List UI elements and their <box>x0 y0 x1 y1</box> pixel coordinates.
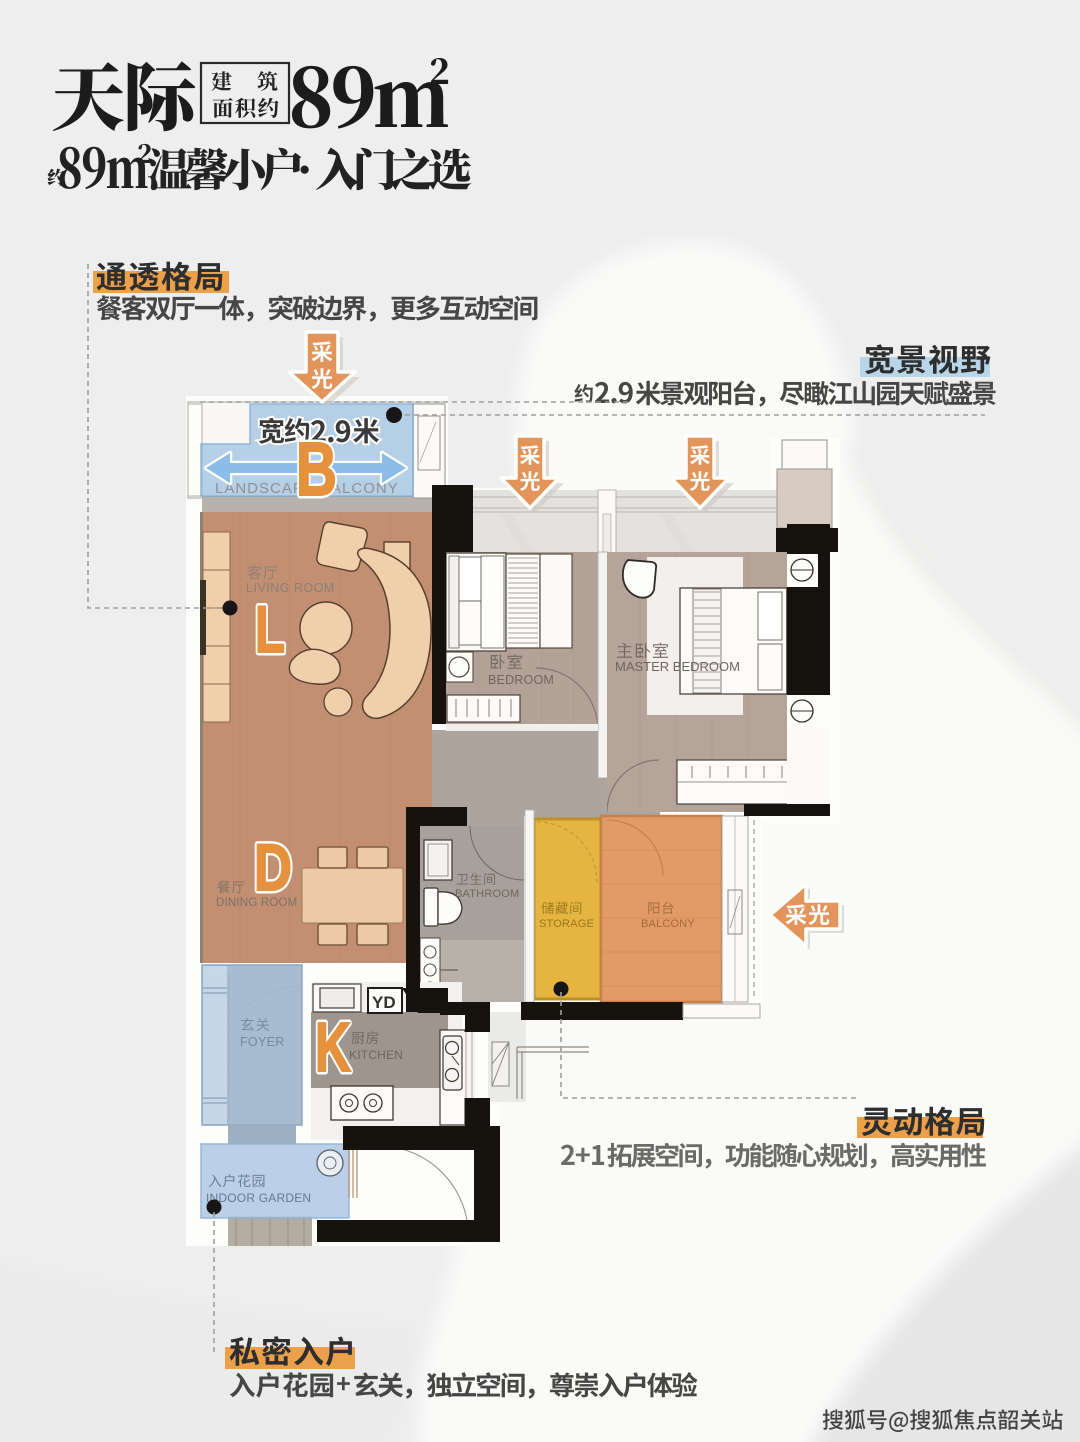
svg-text:BEDROOM: BEDROOM <box>488 673 554 687</box>
svg-text:FOYER: FOYER <box>240 1035 285 1049</box>
svg-text:B: B <box>296 427 337 511</box>
svg-text:BALCONY: BALCONY <box>641 918 695 930</box>
svg-text:MASTER BEDROOM: MASTER BEDROOM <box>615 659 740 674</box>
svg-text:YD: YD <box>372 993 396 1012</box>
svg-text:BATHROOM: BATHROOM <box>455 888 519 900</box>
svg-text:INDOOR GARDEN: INDOOR GARDEN <box>206 1191 311 1205</box>
svg-text:K: K <box>315 1008 351 1086</box>
svg-text:STORAGE: STORAGE <box>539 918 594 930</box>
svg-text:L: L <box>255 592 285 666</box>
svg-text:KITCHEN: KITCHEN <box>349 1048 403 1062</box>
svg-text:D: D <box>254 830 292 904</box>
